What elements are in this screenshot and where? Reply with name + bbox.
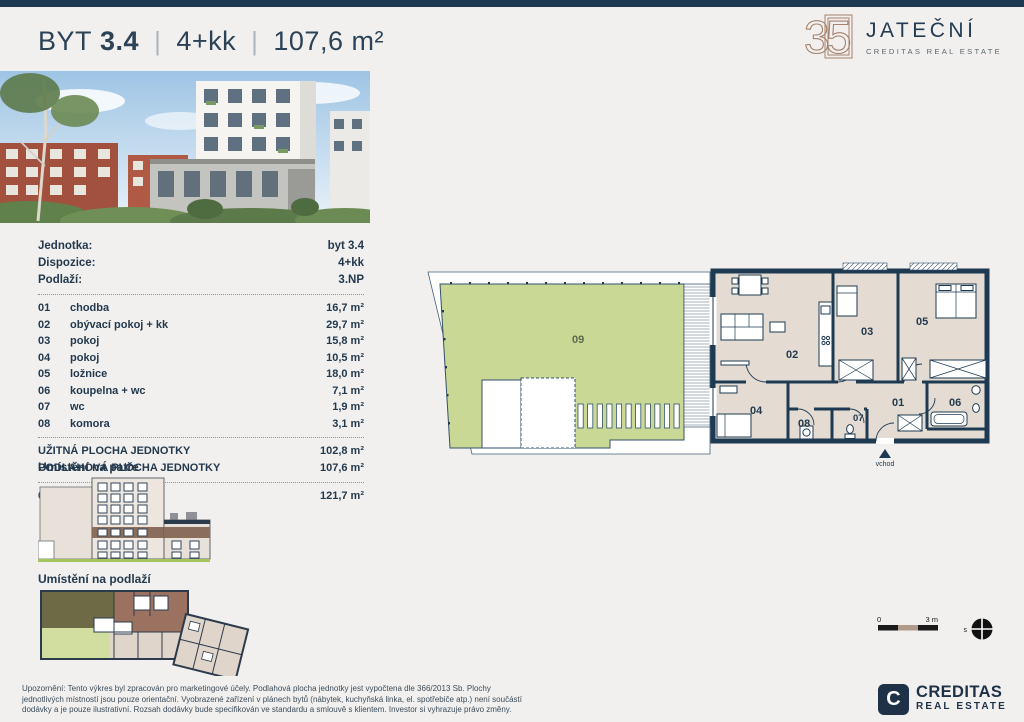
section-floor-location: Umístění na patře: [38, 460, 139, 474]
summary-value: 102,8 m²: [320, 443, 364, 460]
room-number: 04: [38, 350, 70, 367]
dotted-divider: [38, 437, 364, 438]
room-row: 02obývací pokoj + kk29,7 m²: [38, 317, 364, 334]
section-level-location: Umístění na podlaží: [38, 572, 151, 586]
brand-subtitle: CREDITAS REAL ESTATE: [866, 47, 1002, 56]
brand-logo: 3 5 JATEČNÍ CREDITAS REAL ESTATE: [804, 12, 1002, 62]
info-value: 3.NP: [338, 272, 364, 289]
room-row: 01chodba16,7 m²: [38, 300, 364, 317]
dotted-divider: [38, 294, 364, 295]
building-elevation-diagram: [38, 475, 216, 567]
room-area: 7,1 m²: [332, 383, 364, 400]
room-area: 10,5 m²: [326, 350, 364, 367]
creditas-logo-icon: C: [878, 684, 909, 715]
room-number: 08: [38, 416, 70, 433]
room-area: 16,7 m²: [326, 300, 364, 317]
scale-end-label: 3 m: [925, 615, 938, 624]
room-name: wc: [70, 399, 332, 416]
room-label-01: 01: [892, 397, 904, 409]
scale-and-compass: 0 3 m s: [872, 610, 1002, 652]
room-row: 06koupelna + wc7,1 m²: [38, 383, 364, 400]
room-number: 01: [38, 300, 70, 317]
info-value: byt 3.4: [328, 238, 364, 255]
terrace-deck: [684, 284, 710, 427]
room-label-02: 02: [786, 349, 798, 361]
title-area: 107,6 m²: [273, 26, 384, 57]
scale-bar: [878, 625, 898, 631]
highlighted-floor: [164, 527, 210, 538]
room-row: 07wc1,9 m²: [38, 399, 364, 416]
brand-name: JATEČNÍ: [866, 19, 1002, 43]
room-label-08: 08: [798, 418, 810, 430]
disclaimer-text: Upozornění: Tento výkres byl zpracován p…: [22, 684, 524, 716]
room-label-07: 07: [853, 413, 864, 424]
summary-label: UŽITNÁ PLOCHA JEDNOTKY: [38, 443, 190, 460]
building-photo: [0, 71, 370, 223]
floor-level-diagram: [38, 586, 260, 676]
room-name: obývací pokoj + kk: [70, 317, 326, 334]
title-disposition: 4+kk: [176, 26, 236, 57]
datasheet-page: BYT 3.4 | 4+kk | 107,6 m² 3 5 JATEČNÍ CR…: [0, 0, 1024, 722]
room-area: 121,7 m²: [320, 488, 364, 505]
room-row: 08komora3,1 m²: [38, 416, 364, 433]
garden-structure-dashed: [521, 378, 575, 448]
room-label-03: 03: [861, 326, 873, 338]
title-separator: |: [251, 26, 258, 57]
room-row: 04pokoj10,5 m²: [38, 350, 364, 367]
room-area: 18,0 m²: [326, 366, 364, 383]
info-value: 4+kk: [338, 255, 364, 272]
room-label-06: 06: [949, 397, 961, 409]
room-number: 02: [38, 317, 70, 334]
garden-label: 09: [572, 334, 584, 346]
creditas-logo: C CREDITAS REAL ESTATE: [878, 684, 1007, 715]
garden-louvers: [578, 404, 679, 428]
room-name: pokoj: [70, 333, 326, 350]
entrance-label: vchod: [876, 461, 895, 467]
compass-label: s: [964, 627, 968, 634]
room-row: 05ložnice18,0 m²: [38, 366, 364, 383]
room-row: 03pokoj15,8 m²: [38, 333, 364, 350]
info-label: Dispozice:: [38, 255, 96, 272]
room-number: 03: [38, 333, 70, 350]
room-name: koupelna + wc: [70, 383, 332, 400]
apartment-floorplan: 09: [420, 262, 1000, 467]
room-name: pokoj: [70, 350, 326, 367]
title-byt: BYT: [38, 26, 92, 57]
room-number: 07: [38, 399, 70, 416]
info-row: Jednotka:byt 3.4: [38, 238, 364, 255]
compass-icon: [972, 619, 993, 640]
room-name: komora: [70, 416, 332, 433]
info-label: Podlaží:: [38, 272, 82, 289]
creditas-logo-subtitle: REAL ESTATE: [916, 701, 1007, 713]
jatecni-35-emblem-icon: 3 5: [804, 12, 854, 62]
room-name: chodba: [70, 300, 326, 317]
room-label-05: 05: [916, 316, 928, 328]
info-row: Podlaží:3.NP: [38, 272, 364, 289]
top-accent-bar: [0, 0, 1024, 7]
info-row: Dispozice:4+kk: [38, 255, 364, 272]
page-title: BYT 3.4 | 4+kk | 107,6 m²: [38, 20, 384, 62]
title-separator: |: [154, 26, 161, 57]
room-number: 06: [38, 383, 70, 400]
title-unit-number: 3.4: [100, 26, 139, 57]
room-area: 1,9 m²: [332, 399, 364, 416]
room-number: 05: [38, 366, 70, 383]
room-label-04: 04: [750, 405, 763, 417]
garden-structure: [482, 380, 521, 448]
room-name: ložnice: [70, 366, 326, 383]
room-area: 3,1 m²: [332, 416, 364, 433]
scale-start-label: 0: [877, 615, 881, 624]
info-label: Jednotka:: [38, 238, 92, 255]
creditas-logo-name: CREDITAS: [916, 684, 1007, 701]
room-area: 29,7 m²: [326, 317, 364, 334]
summary-row: UŽITNÁ PLOCHA JEDNOTKY102,8 m²: [38, 443, 364, 460]
entrance-arrow-icon: [879, 449, 891, 458]
summary-value: 107,6 m²: [320, 460, 364, 477]
room-area: 15,8 m²: [326, 333, 364, 350]
